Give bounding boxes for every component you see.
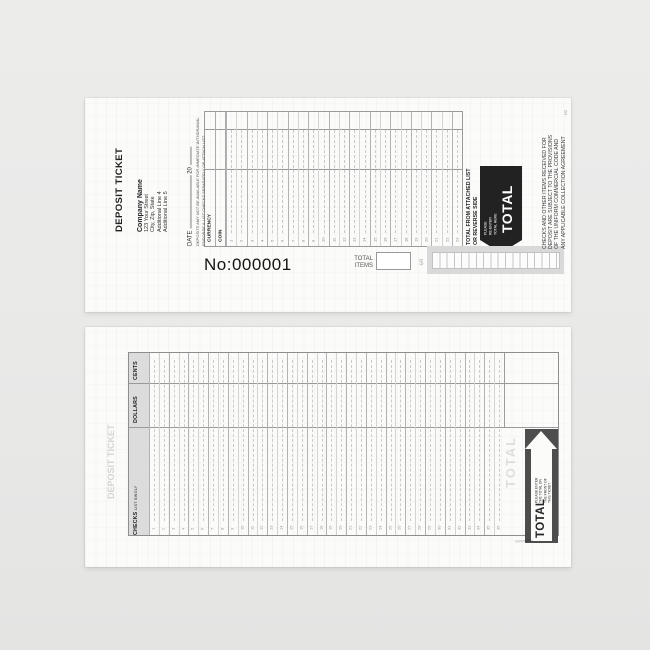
row-number: 21 [434,238,439,242]
reenter-total-line: RE-ENTER [489,217,493,235]
grid-row-column: 22 [442,112,452,246]
checks-list-singly-header: CHECKS LIST SINGLY [133,486,138,535]
row-number: 29 [427,526,432,530]
row-number: 33 [467,526,472,530]
dollar-sign: $ [419,258,423,267]
row-number: 23 [455,238,460,242]
row-number: 13 [352,238,357,242]
grid-row-column: 13 [267,353,277,535]
grid-row-column: 10 [318,112,328,246]
row-number: 7 [210,528,215,530]
row-number: 31 [447,526,452,530]
grid-row-column: 3 [169,353,179,535]
year-blank-line [185,147,191,165]
grid-row-column: 2 [159,353,169,535]
grid-row-column: 8 [218,353,228,535]
grid-row-column: 11 [329,112,339,246]
row-number: 12 [342,238,347,242]
row-number: 3 [250,240,255,242]
row-number: 9 [311,240,316,242]
enter-total-on-front-line: THE TOTAL ON [539,479,542,503]
row-number: 20 [338,526,343,530]
row-number: 22 [358,526,363,530]
currency-label: CURRENCY [207,214,212,242]
row-number: 3 [171,528,176,530]
row-number: 17 [309,526,314,530]
grid-row-column: 20 [421,112,431,246]
row-number: 5 [270,240,275,242]
row-number: 4 [260,240,265,242]
row-number: 17 [393,238,398,242]
row-number: 10 [321,238,326,242]
row-number: 1 [229,240,234,242]
total-items-line1: TOTAL [337,256,373,263]
grid-row-column: 5 [188,353,198,535]
row-number: 2 [239,240,244,242]
total-from-attached-list-line: TOTAL FROM ATTACHED LIST [466,169,471,245]
company-address-line: 123 Your Street [144,194,150,232]
row-number: 11 [332,238,337,242]
deposit-notice-line: ENDORSE & LIST CHECKS SEPARATELY OR ATTA… [202,136,206,246]
grid-row-column: 16 [297,353,307,535]
grid-row-column: 2 [236,112,246,246]
enter-total-on-front-line: THIS TICKET [548,483,551,503]
row-number: 18 [404,238,409,242]
row-number: 9 [230,528,235,530]
grid-row-column: 33 [465,353,475,535]
legal-text-line: OF THE UNIFORM COMMERCIAL CODE AND [554,139,559,249]
deposit-ticket-back: DEPOSIT TICKET CENTS DOLLARS CHECKS LIST… [85,327,571,567]
amount-grid: CURRENCY COIN 12345678910111213141516171… [204,111,463,247]
grid-row-column: 19 [326,353,336,535]
checks-header-sub: LIST SINGLY [134,486,139,510]
product-photo-background: DEPOSIT TICKET DATE 20 CURRENCY COIN 123… [0,0,650,650]
currency-column: CURRENCY [205,112,216,246]
row-number: 19 [414,238,419,242]
reenter-total-line: PLEASE [484,221,488,235]
total-items-line2: ITEMS [337,263,373,270]
grid-row-column: 5 [267,112,277,246]
ticket-serial-number: No:000001 [204,255,292,275]
micr-amount-band [427,246,564,274]
form-code: D2 [564,110,568,115]
date-line: DATE 20 [185,147,194,246]
row-number: 20 [424,238,429,242]
grid-row-column: 18 [401,112,411,246]
grid-row-column: 28 [415,353,425,535]
grid-row-column: 29 [425,353,435,535]
grid-row-column: 32 [455,353,465,535]
deposit-ticket-front: DEPOSIT TICKET DATE 20 CURRENCY COIN 123… [85,98,571,312]
row-number: 2 [161,528,166,530]
row-number: 13 [269,526,274,530]
row-number: 27 [407,526,412,530]
row-number: 5 [190,528,195,530]
enter-total-on-front-line: THE FRONT OF [544,478,547,503]
row-number: 4 [181,528,186,530]
total-label: TOTAL [536,499,548,538]
grid-row-column: 20 [336,353,346,535]
grid-row-column: 7 [288,112,298,246]
legal-text-line: ANY APPLICABLE COLLECTION AGREEMENT [561,136,566,249]
grid-row-column: 7 [208,353,218,535]
row-number: 30 [437,526,442,530]
row-number: 8 [301,240,306,242]
grid-row-column: 9 [308,112,318,246]
row-number: 36 [496,526,501,530]
row-number: 7 [291,240,296,242]
grid-row-column: 30 [435,353,445,535]
grid-row-column: 8 [298,112,308,246]
checks-list-grid: CENTS DOLLARS CHECKS LIST SINGLY 1234567… [128,352,559,536]
grid-row-column: 27 [405,353,415,535]
grid-row-column: 15 [370,112,380,246]
up-arrow-icon [525,431,557,449]
total-label: TOTAL [500,185,514,233]
row-number: 18 [319,526,324,530]
row-number: 24 [378,526,383,530]
row-number: 21 [348,526,353,530]
grid-row-column: 17 [390,112,400,246]
check-rows: 1234567891011121314151617181920212223242… [149,353,504,535]
grid-row-column: 15 [287,353,297,535]
cents-header: CENTS [133,361,138,380]
row-number: 35 [486,526,491,530]
grid-row-column: 13 [349,112,359,246]
row-number: 26 [397,526,402,530]
total-row-column [504,353,559,427]
grid-row-column: 24 [376,353,386,535]
grid-row-column: 14 [277,353,287,535]
grid-row-column: 4 [179,353,189,535]
checks-header-bold: CHECKS [133,512,138,535]
enter-total-on-front-line: PLEASE ENTER [535,478,538,503]
row-number: 1 [151,528,156,530]
total-items-entry-box [376,252,411,270]
row-number: 23 [368,526,373,530]
date-label: DATE [187,230,193,246]
amount-entry-cells [432,252,560,269]
company-address-line: Additional Line 5 [163,191,169,232]
grid-row-column: 4 [257,112,267,246]
row-number: 15 [289,526,294,530]
grid-row-column: 1 [226,112,236,246]
row-number: 32 [457,526,462,530]
grid-row-column: 3 [247,112,257,246]
grid-row-column: 9 [228,353,238,535]
row-number: 28 [417,526,422,530]
row-number: 16 [383,238,388,242]
grid-row-column: 21 [346,353,356,535]
deposit-ticket-title: DEPOSIT TICKET [115,148,125,232]
grid-row-column: 31 [445,353,455,535]
reenter-total-line: TOTAL HERE [494,213,498,235]
coin-column: COIN [216,112,226,246]
grid-row-column: 17 [307,353,317,535]
row-number: 14 [279,526,284,530]
total-items-label: TOTAL ITEMS [337,256,373,270]
dollars-header: DOLLARS [133,396,138,423]
grid-row-column: 12 [257,353,267,535]
show-through-ghost-total: TOTAL [504,436,517,488]
coin-label: COIN [218,230,223,242]
grid-row-column: 14 [359,112,369,246]
grid-row-column: 6 [277,112,287,246]
grid-row-column: 6 [198,353,208,535]
row-number: 16 [299,526,304,530]
row-number: 11 [250,526,255,530]
grid-row-column: 25 [386,353,396,535]
grid-row-column: 10 [238,353,248,535]
row-number: 15 [373,238,378,242]
grid-row-column: 16 [380,112,390,246]
row-number: 8 [220,528,225,530]
total-from-attached-list-line: OR REVERSE SIDE [473,197,478,245]
company-address-line: City, Zip, State [150,196,156,232]
row-number: 34 [476,526,481,530]
grid-row-column: 21 [431,112,441,246]
company-address-line: Additional Line 4 [157,191,163,232]
grid-row-column: 22 [356,353,366,535]
row-number: 10 [240,526,245,530]
grid-row-column: 35 [484,353,494,535]
deposit-notice-line: DEPOSITS MAY NOT BE AVAILABLE FOR IMMEDI… [196,117,200,246]
grid-row-column: 18 [317,353,327,535]
row-number: 19 [328,526,333,530]
grid-row-column: 34 [474,353,484,535]
row-number: 25 [388,526,393,530]
date-year-prefix: 20 [187,167,193,174]
row-number: 22 [445,238,450,242]
grid-row-column: 23 [366,353,376,535]
grid-row-column: 19 [411,112,421,246]
row-number: 14 [362,238,367,242]
row-number: 6 [200,528,205,530]
show-through-ghost-title: DEPOSIT TICKET [107,424,116,499]
date-blank-line [185,175,191,228]
row-number: 12 [259,526,264,530]
row-number: 6 [280,240,285,242]
grid-row-column: 23 [452,112,462,246]
grid-row-column: 1 [149,353,159,535]
check-rows: 1234567891011121314151617181920212223 [226,112,462,246]
grid-row-column: 12 [339,112,349,246]
grid-row-column: 26 [395,353,405,535]
grid-row-column: 11 [248,353,258,535]
